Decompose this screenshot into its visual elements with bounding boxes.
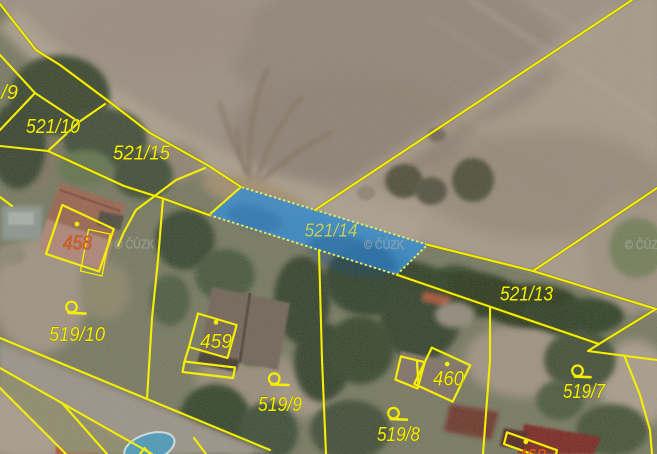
svg-text:521/13: 521/13 (500, 284, 553, 306)
svg-text:521/10: 521/10 (26, 116, 80, 138)
svg-text:519/9: 519/9 (258, 394, 302, 416)
svg-text:519/7: 519/7 (563, 381, 606, 403)
svg-text:521/14: 521/14 (305, 220, 358, 241)
svg-text:519/8: 519/8 (377, 424, 420, 446)
svg-text:460: 460 (433, 368, 464, 391)
svg-text:459: 459 (200, 331, 232, 353)
svg-text:519/10: 519/10 (49, 324, 105, 346)
svg-text:468: 468 (517, 446, 546, 454)
svg-text:1/9: 1/9 (0, 82, 18, 104)
svg-text:521/15: 521/15 (113, 143, 171, 165)
svg-text:© ČÚZK: © ČÚZK (364, 237, 405, 252)
svg-text:© ČÚZK: © ČÚZK (625, 237, 657, 252)
svg-text:© ČÚZK: © ČÚZK (115, 237, 156, 252)
svg-text:458: 458 (63, 233, 92, 255)
